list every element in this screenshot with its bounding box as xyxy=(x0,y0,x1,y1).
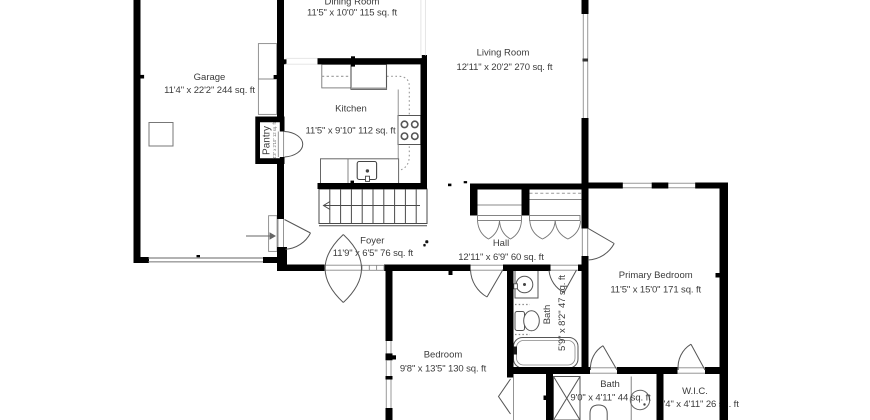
svg-text:W.I.C.: W.I.C. xyxy=(682,386,708,397)
svg-text:4'3" x 2'10" 12 sq. ft: 4'3" x 2'10" 12 sq. ft xyxy=(272,121,277,159)
svg-text:12'11" x 20'2" 270 sq. ft: 12'11" x 20'2" 270 sq. ft xyxy=(457,62,553,73)
svg-text:Foyer: Foyer xyxy=(360,236,384,247)
svg-text:11'9" x 6'5" 76 sq. ft: 11'9" x 6'5" 76 sq. ft xyxy=(333,248,414,259)
svg-text:Kitchen: Kitchen xyxy=(335,104,367,115)
svg-text:Bath: Bath xyxy=(542,305,553,325)
svg-text:Garage: Garage xyxy=(194,72,226,83)
svg-text:12'11" x 6'9" 60 sq. ft: 12'11" x 6'9" 60 sq. ft xyxy=(458,252,544,263)
svg-text:Dining Room: Dining Room xyxy=(325,0,380,8)
svg-text:Primary Bedroom: Primary Bedroom xyxy=(619,270,693,281)
svg-text:Hall: Hall xyxy=(493,238,509,249)
svg-text:Bedroom: Bedroom xyxy=(424,350,463,361)
svg-text:5'9" x 8'2" 47 sq. ft: 5'9" x 8'2" 47 sq. ft xyxy=(557,275,568,351)
svg-text:Living Room: Living Room xyxy=(477,48,530,59)
svg-text:9'8" x 13'5" 130 sq. ft: 9'8" x 13'5" 130 sq. ft xyxy=(400,364,487,375)
svg-text:11'5" x 15'0" 171 sq. ft: 11'5" x 15'0" 171 sq. ft xyxy=(610,284,701,295)
svg-text:11'4" x 22'2" 244 sq. ft: 11'4" x 22'2" 244 sq. ft xyxy=(164,85,255,96)
svg-text:11'5" x 10'0" 115 sq. ft: 11'5" x 10'0" 115 sq. ft xyxy=(307,8,397,19)
svg-text:11'5" x 9'10" 112 sq. ft: 11'5" x 9'10" 112 sq. ft xyxy=(305,126,395,137)
svg-text:9'0" x 4'11" 44 sq. ft: 9'0" x 4'11" 44 sq. ft xyxy=(570,393,651,404)
svg-text:Bath: Bath xyxy=(600,379,620,390)
